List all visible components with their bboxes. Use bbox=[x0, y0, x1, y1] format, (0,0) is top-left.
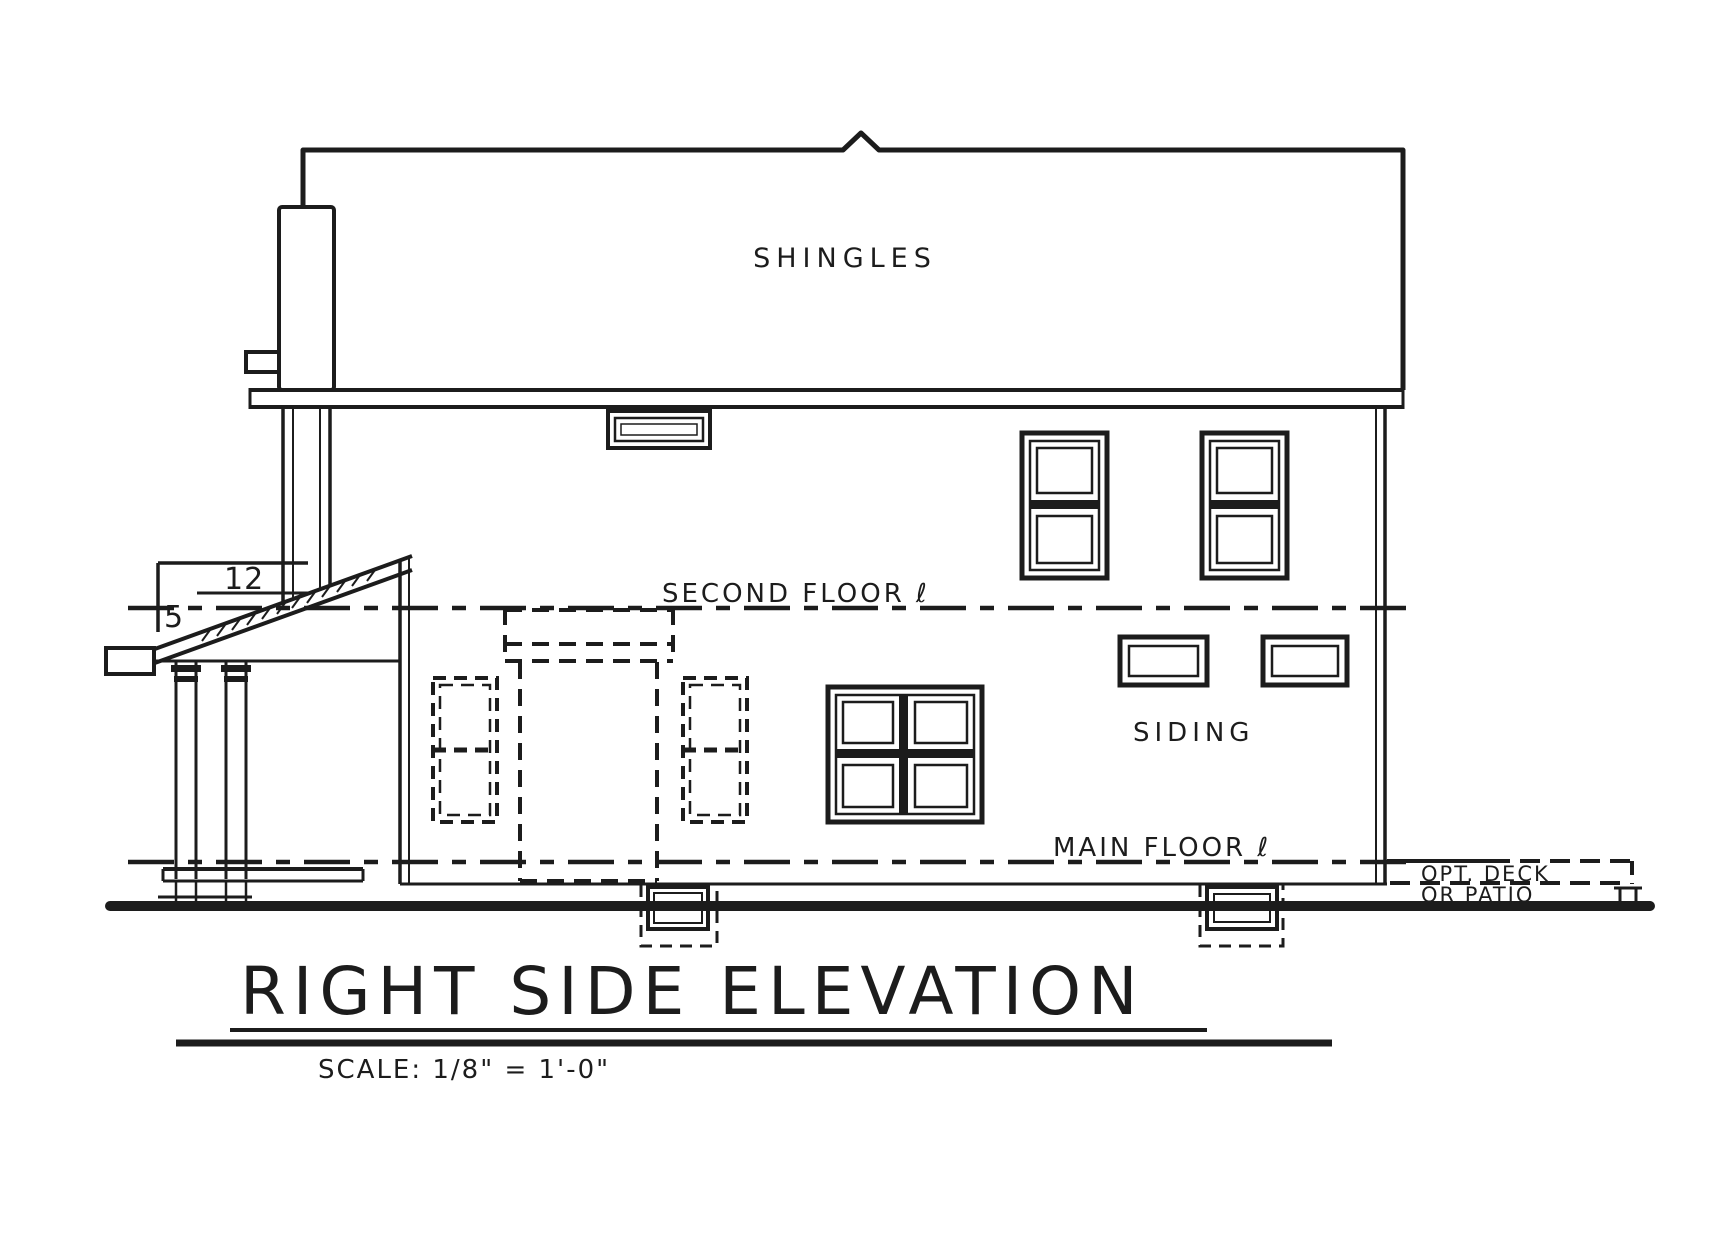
porch-column-1 bbox=[171, 661, 201, 879]
chimney-chase-trim bbox=[283, 408, 330, 604]
title-block: RIGHT SIDE ELEVATION SCALE: 1/8" = 1'-0" bbox=[176, 953, 1332, 1085]
main-floor-label: MAIN FLOOR ℓ bbox=[1053, 833, 1271, 863]
porch-floor bbox=[163, 869, 363, 881]
foundation-vent-1 bbox=[641, 885, 717, 946]
window-upper-1 bbox=[1022, 433, 1107, 578]
window-transom-1 bbox=[1120, 637, 1207, 685]
foundation-vent-2 bbox=[1200, 885, 1283, 946]
scale-note: SCALE: 1/8" = 1'-0" bbox=[318, 1055, 610, 1085]
pitch-rise-label: 5 bbox=[164, 600, 184, 635]
second-floor-label: SECOND FLOOR ℓ bbox=[662, 579, 930, 609]
chimney-stack bbox=[279, 207, 334, 390]
window-optional-1 bbox=[433, 678, 497, 822]
elevation-sheet: SECOND FLOOR ℓ 12 5 bbox=[0, 0, 1716, 1242]
floor-line-main: MAIN FLOOR ℓ bbox=[128, 833, 1420, 863]
porch-piers bbox=[158, 881, 252, 903]
window-upper-2 bbox=[1202, 433, 1287, 578]
attic-vent bbox=[608, 411, 710, 448]
drawing-title: RIGHT SIDE ELEVATION bbox=[240, 953, 1144, 1030]
fascia-band bbox=[250, 388, 1403, 409]
window-transom-2 bbox=[1263, 637, 1347, 685]
porch-column-2 bbox=[221, 661, 251, 879]
shingles-label: SHINGLES bbox=[753, 243, 937, 274]
siding-label: SIDING bbox=[1133, 718, 1254, 748]
fireplace-chase-dashed bbox=[505, 608, 673, 881]
window-optional-2 bbox=[683, 678, 747, 822]
elevation-drawing: SECOND FLOOR ℓ 12 5 bbox=[0, 0, 1716, 1242]
pitch-run-label: 12 bbox=[224, 562, 264, 597]
pitch-indicator: 12 5 bbox=[158, 562, 310, 635]
right-wall bbox=[1376, 408, 1385, 884]
porch-fascia-cap bbox=[106, 648, 154, 674]
window-living bbox=[828, 687, 982, 822]
